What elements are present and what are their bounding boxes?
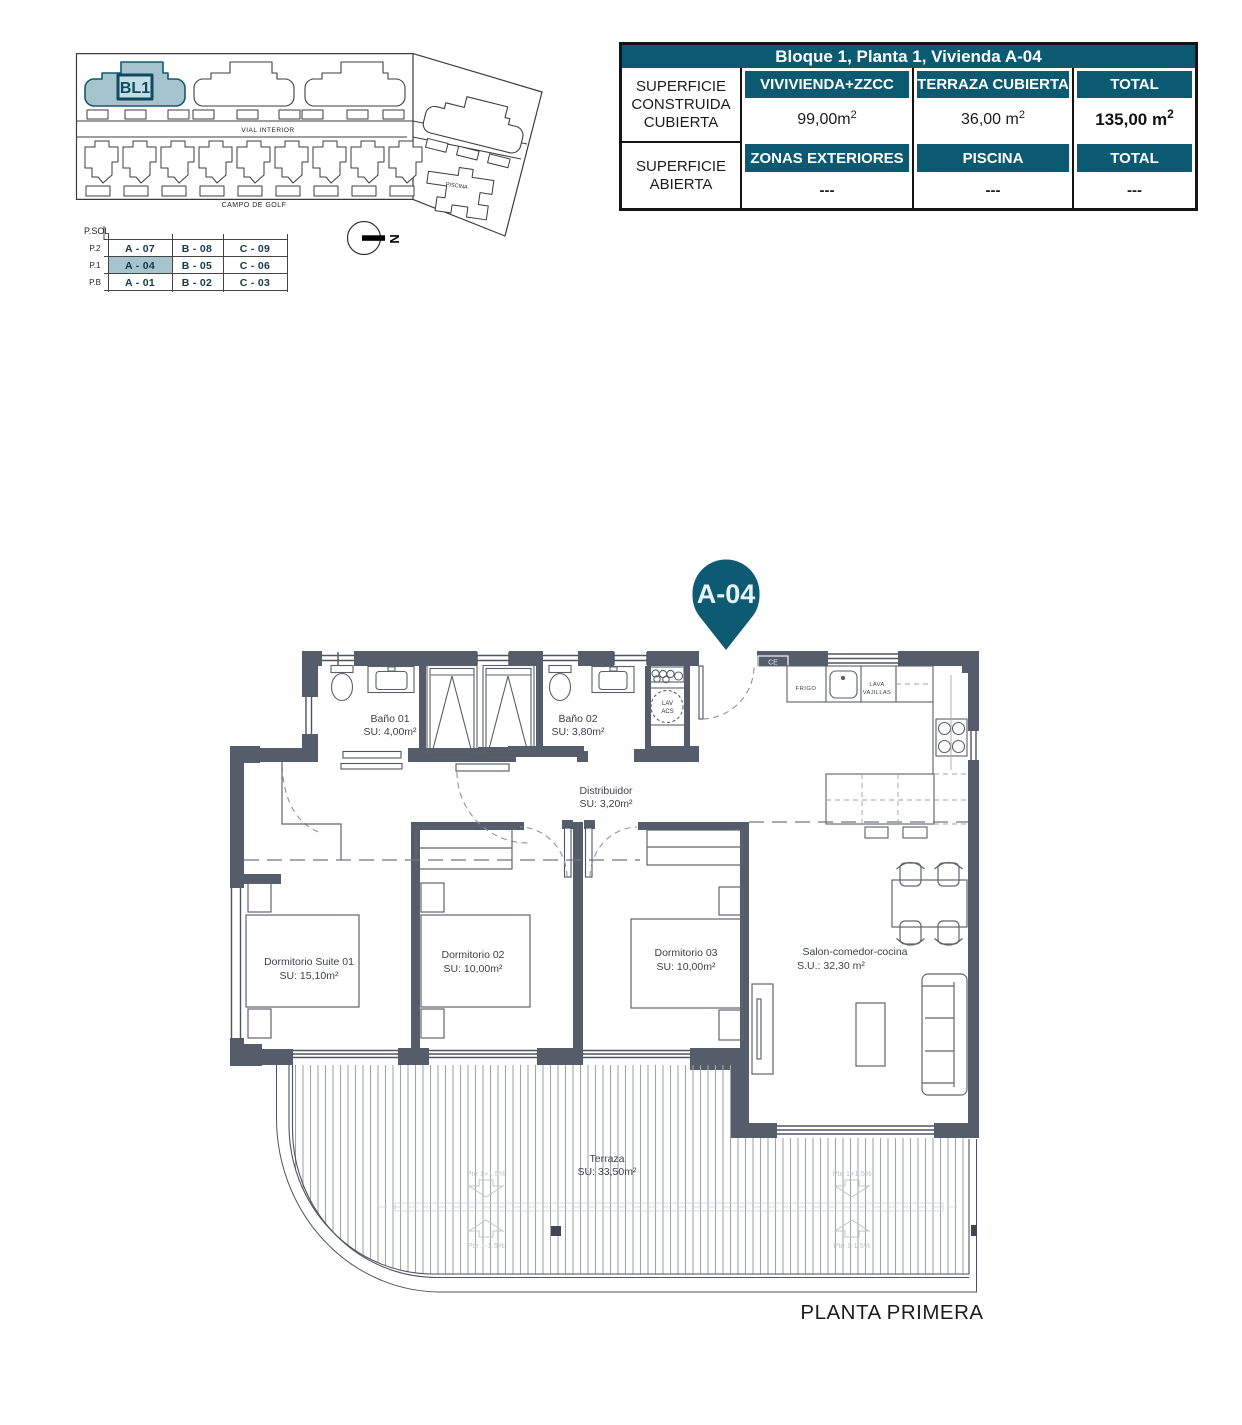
svg-text:P.SOL: P.SOL bbox=[84, 226, 109, 236]
svg-text:SU: 10,00m²: SU: 10,00m² bbox=[657, 961, 716, 973]
svg-text:C - 09: C - 09 bbox=[240, 243, 270, 255]
svg-text:P.B: P.B bbox=[89, 278, 101, 287]
svg-text:LAV: LAV bbox=[662, 701, 673, 707]
svg-text:Terraza: Terraza bbox=[589, 1153, 624, 1165]
svg-text:Dormitorio Suite 01: Dormitorio Suite 01 bbox=[264, 956, 354, 968]
svg-text:ACS: ACS bbox=[661, 709, 673, 715]
svg-text:N: N bbox=[387, 234, 402, 243]
svg-text:Pte 1-1.5%: Pte 1-1.5% bbox=[467, 1241, 504, 1250]
svg-text:Baño 01: Baño 01 bbox=[370, 713, 409, 725]
svg-text:Dormitorio 02: Dormitorio 02 bbox=[441, 949, 504, 961]
svg-text:Distribuidor: Distribuidor bbox=[579, 785, 633, 797]
svg-text:S.U.: 32,30 m²: S.U.: 32,30 m² bbox=[797, 960, 865, 972]
svg-text:CE: CE bbox=[768, 660, 778, 667]
svg-text:SU: 3,20m²: SU: 3,20m² bbox=[579, 798, 633, 810]
svg-text:Pte 1-1.5%: Pte 1-1.5% bbox=[833, 1241, 870, 1250]
svg-text:A - 07: A - 07 bbox=[125, 243, 155, 255]
svg-text:C - 03: C - 03 bbox=[240, 277, 270, 289]
svg-text:PLANTA PRIMERA: PLANTA PRIMERA bbox=[800, 1301, 983, 1324]
svg-text:A - 01: A - 01 bbox=[125, 277, 155, 289]
svg-text:Salon-comedor-cocina: Salon-comedor-cocina bbox=[802, 946, 907, 958]
svg-text:SU: 4,00m²: SU: 4,00m² bbox=[363, 726, 417, 738]
svg-text:P.2: P.2 bbox=[90, 244, 102, 253]
svg-text:Baño 02: Baño 02 bbox=[558, 713, 597, 725]
svg-text:B - 02: B - 02 bbox=[182, 277, 212, 289]
svg-text:A - 04: A - 04 bbox=[125, 260, 155, 272]
svg-text:Pte 1+1.5%: Pte 1+1.5% bbox=[833, 1169, 872, 1178]
svg-text:P.1: P.1 bbox=[90, 261, 102, 270]
svg-text:SU: 33,50m²: SU: 33,50m² bbox=[578, 1166, 637, 1178]
svg-text:SU: 15,10m²: SU: 15,10m² bbox=[280, 970, 339, 982]
svg-text:LAVA: LAVA bbox=[869, 682, 884, 688]
svg-text:FRIGO: FRIGO bbox=[796, 686, 817, 692]
svg-text:C - 06: C - 06 bbox=[240, 260, 270, 272]
svg-text:VAJILLAS: VAJILLAS bbox=[863, 690, 891, 696]
svg-text:A-04: A-04 bbox=[697, 579, 756, 609]
svg-text:Dormitorio 03: Dormitorio 03 bbox=[654, 947, 717, 959]
svg-text:SU: 10,00m²: SU: 10,00m² bbox=[444, 963, 503, 975]
svg-text:B - 05: B - 05 bbox=[182, 260, 212, 272]
svg-text:B - 08: B - 08 bbox=[182, 243, 212, 255]
svg-text:VIAL INTERIOR: VIAL INTERIOR bbox=[241, 127, 294, 134]
svg-text:SU: 3,80m²: SU: 3,80m² bbox=[551, 726, 605, 738]
svg-text:CAMPO DE GOLF: CAMPO DE GOLF bbox=[222, 202, 287, 209]
svg-text:BL1: BL1 bbox=[120, 80, 150, 97]
svg-text:Pte 1+1.5%: Pte 1+1.5% bbox=[467, 1169, 506, 1178]
